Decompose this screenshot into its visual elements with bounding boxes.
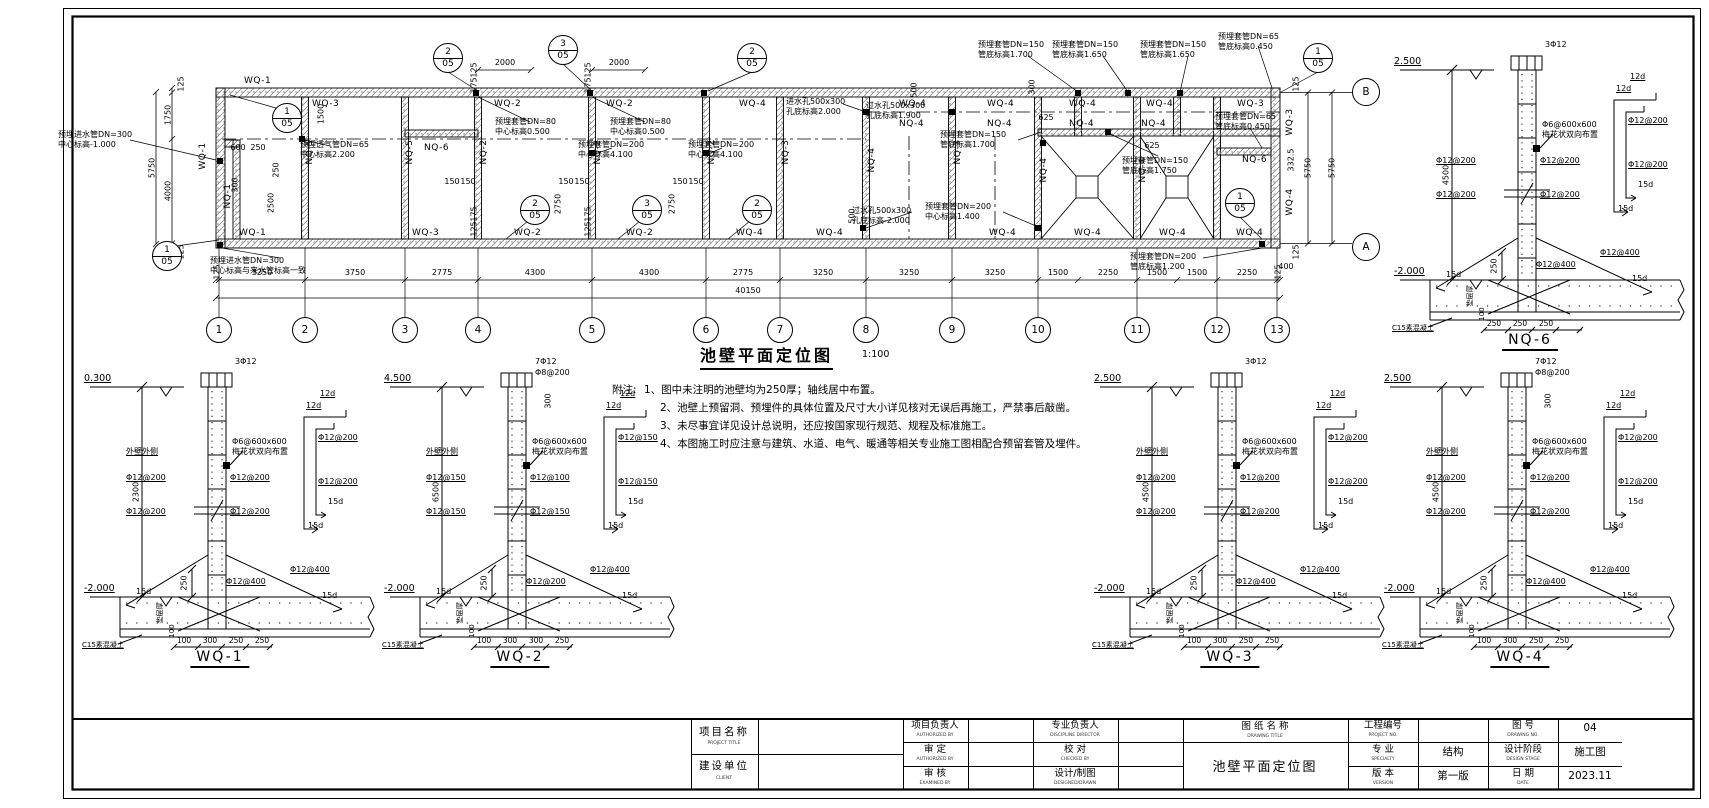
pipe-annotation: 预埋套管DN=200 中心标高4.100 [578,140,644,159]
title-block-field: 工程编号 [1364,720,1402,731]
grid-number: 1 [216,324,223,336]
detail-label: Φ12@150 [426,473,466,482]
detail-label: 15d [1638,180,1653,189]
dimension: 5750 [1328,158,1337,178]
title-block-field: AUTHORIZED BY [917,733,954,738]
detail-label: 12d [306,401,321,410]
wall-tag: NQ-5 [405,139,415,164]
detail-label: Φ12@200 [1530,507,1570,516]
axis-letter: B [1362,86,1369,98]
title-block-field: PROJECT TITLE [707,741,740,746]
detail-label: 2.500 [1384,373,1411,384]
detail-label: NQ-6 [1502,332,1558,351]
detail-label: C15素混凝土 [1382,641,1424,649]
pipe-annotation: 预埋套管DN=150 管底标高1.700 [978,40,1044,59]
detail-label: Φ12@200 [1628,116,1668,125]
wall-section-detail-wq4: 2.50045007Φ12Φ8@20030012d12d外壁外侧Φ6@600x6… [1380,345,1690,665]
detail-label: Φ12@400 [1300,565,1340,574]
title-block-field: 项目名称 [699,726,749,738]
wall-section-detail-wq3: 2.50045003Φ1212d12d外壁外侧Φ6@600x600 梅花状双向布… [1090,345,1400,665]
callout-detail-number: 2 [743,199,771,211]
detail-label: 12d [1316,401,1331,410]
dimension: 150 [460,177,475,186]
detail-label: 250 [1539,320,1553,328]
callout-detail-number: 1 [1226,192,1254,204]
detail-label: C15素混凝土 [1092,641,1134,649]
callout-detail-number: 1 [1304,47,1332,59]
detail-label: 250 [180,575,189,590]
dimension: 600 [230,143,245,152]
pipe-annotation: 进水孔500x300 孔底标高2.000 [786,97,845,116]
detail-label: 12d [1616,84,1631,93]
dimension: 2000 [495,58,515,67]
grid-bubble-6: 6 [693,317,719,343]
detail-label: 15d [308,521,323,530]
detail-label: Φ12@200 [318,433,358,442]
grid-number: 9 [949,324,956,336]
detail-label: -2.000 [84,583,115,594]
detail-callout-bubble: 105 [152,241,182,271]
detail-label: Φ12@400 [1536,260,1576,269]
detail-label: 250 [1555,637,1569,645]
pipe-annotation: 预埋透气管DN=65 中心标高2.200 [300,140,369,159]
detail-label: WQ-3 [1200,649,1259,668]
detail-label: 外壁外侧 [426,447,458,457]
drawing-sheet: WQ-1WQ-3WQ-2WQ-2WQ-4WQ-4WQ-4WQ-4WQ-4WQ-3… [0,0,1709,808]
detail-label: 15d [622,591,637,600]
dimension: 125 [470,62,479,77]
detail-label: 100 [1178,624,1186,637]
wall-tag: WQ-2 [606,99,633,109]
detail-label: 6500 [432,482,441,502]
plan-title: 池壁平面定位图 [700,342,833,370]
dimension: 150 [444,177,459,186]
detail-label: C15素混凝土 [382,641,424,649]
detail-label: Φ6@600x600 梅花状双向布置 [1532,437,1588,456]
detail-callout-bubble: 205 [742,195,772,225]
grid-number: 11 [1130,324,1143,336]
detail-label: Φ12@400 [1236,577,1276,586]
detail-label: 垫层厚 [1466,286,1474,307]
title-block-line [72,718,1694,720]
wall-tag: WQ-4 [1146,99,1173,109]
title-block-field: DESIGNED/DRAWN [1054,781,1096,786]
wall-tag: WQ-4 [1159,228,1186,238]
detail-callout-bubble: 205 [433,43,463,73]
callout-sheet-number: 05 [1304,59,1332,70]
detail-label: 垫层厚 [156,603,164,624]
title-block-field: 项目负责人 [911,720,959,731]
wall-tag: NQ-4 [987,119,1012,129]
detail-label: 外壁外侧 [1426,447,1458,457]
detail-label: 垫层厚 [1456,603,1464,624]
detail-label: Φ12@200 [1436,190,1476,199]
detail-label: 2300 [132,482,141,502]
dimension: 4000 [164,181,173,201]
grid-number: 4 [475,324,482,336]
dimension: 125 [177,76,186,91]
wall-tag: WQ-4 [816,228,843,238]
wall-section-detail-nq6: 2.50045003Φ1212d12dΦ6@600x600 梅花状双向布置Φ12… [1390,28,1700,348]
detail-label: Φ12@400 [1526,577,1566,586]
title-block-field: 审 定 [924,744,946,755]
title-block-field: 图 号 [1512,720,1534,731]
wall-section-detail-wq1: 0.30023003Φ1212d12d外壁外侧Φ6@600x600 梅花状双向布… [80,345,390,665]
dimension: 150 [574,177,589,186]
detail-label: 15d [1618,204,1633,213]
detail-label: Φ12@200 [126,473,166,482]
dimension: 300 [1028,79,1037,94]
dimension: 3250 [985,268,1005,277]
dimension: 1500 [1048,268,1068,277]
detail-label: 100 [1468,624,1476,637]
title-block-field: DRAWING NO. [1507,733,1538,738]
detail-label: 250 [1480,575,1489,590]
dimension: 125 [584,221,593,236]
grid-bubble-12: 12 [1204,317,1230,343]
dimension: 2000 [609,58,629,67]
title-block-line [1488,718,1489,790]
detail-label: 300 [529,637,543,645]
detail-label: Φ12@200 [1540,156,1580,165]
wall-tag: NQ-2 [479,139,489,164]
wall-tag: WQ-4 [739,99,766,109]
pipe-annotation: 预埋套管DN=65 管底标高0.450 [1218,32,1279,51]
grid-bubble-5: 5 [579,317,605,343]
detail-label: 15d [1608,521,1623,530]
dimension: 125 [1292,244,1301,259]
detail-label: 250 [1513,320,1527,328]
dimension: 625 [1144,141,1159,150]
title-block-field: DESIGN STAGE [1506,757,1539,762]
detail-label: 15d [436,587,451,596]
detail-label: Φ12@200 [1618,433,1658,442]
callout-sheet-number: 05 [521,211,549,222]
detail-label: 250 [1529,637,1543,645]
detail-label: Φ12@150 [618,477,658,486]
title-block-line [1348,718,1349,790]
title-block-field: CHECKED BY [1061,757,1090,762]
detail-label: Φ12@400 [1600,248,1640,257]
detail-callout-bubble: 105 [1225,188,1255,218]
title-block-field: 版 本 [1372,768,1394,779]
detail-callout-bubble: 305 [548,35,578,65]
detail-label: 300 [1544,393,1553,408]
dimension: 250 [272,162,281,177]
title-block-field: EXAMINED BY [920,781,951,786]
detail-label: 100 [168,624,176,637]
wall-tag: NQ-4 [1069,119,1094,129]
dimension: 2500 [267,193,276,213]
detail-label: Φ12@200 [230,507,270,516]
dimension: 175 [470,206,479,221]
callout-sheet-number: 05 [633,211,661,222]
axis-bubble-a: A [1352,233,1380,261]
wall-tag: WQ-1 [239,228,266,238]
detail-label: 3Φ12 [1245,357,1267,366]
dimension: 1500 [317,104,326,124]
dimension: 5750 [148,158,157,178]
title-block-field: 建设单位 [699,760,749,772]
callout-sheet-number: 05 [743,211,771,222]
section-linework [1380,345,1690,665]
callout-detail-number: 3 [633,199,661,211]
grid-bubble-10: 10 [1025,317,1051,343]
pipe-annotation: 预埋进水管DN=300 中心标高-1.000 [58,130,132,149]
detail-label: Φ12@200 [126,507,166,516]
title-block-field: 池壁平面定位图 [1212,756,1317,775]
detail-label: 300 [503,637,517,645]
detail-label: 12d [320,389,335,398]
title-block-field: DRAWING TITLE [1247,734,1282,739]
section-linework [80,345,390,665]
detail-label: 外壁外侧 [126,447,158,457]
title-block-field: DISCIPLINE DIRECTOR [1050,733,1100,738]
detail-label: 4500 [1442,165,1451,185]
dimension: 175 [584,206,593,221]
detail-label: 15d [1332,591,1347,600]
detail-label: 15d [628,497,643,506]
detail-label: Φ12@150 [618,433,658,442]
pipe-annotation: 预埋套管DN=80 中心标高0.500 [495,117,556,136]
detail-label: Φ12@200 [318,477,358,486]
dimension: 125 [584,62,593,77]
wall-tag: NQ-3 [781,139,791,164]
detail-label: 250 [1265,637,1279,645]
title-block-field: CLIENT [716,776,732,781]
detail-label: C15素混凝土 [82,641,124,649]
grid-bubble-1: 1 [206,317,232,343]
detail-label: 外壁外侧 [1136,447,1168,457]
dimension: 150 [688,177,703,186]
grid-bubble-9: 9 [939,317,965,343]
detail-label: 4500 [1432,482,1441,502]
detail-label: 15d [1338,497,1353,506]
detail-label: Φ12@200 [1628,160,1668,169]
axis-letter: A [1362,241,1369,253]
grid-number: 8 [863,324,870,336]
pipe-annotation: 预埋套管DN=200 中心标高4.100 [688,140,754,159]
detail-label: 3Φ12 [1545,40,1567,49]
pipe-annotation: 预埋套管DN=150 管底标高1.650 [1052,40,1118,59]
dimension: 332.5 [1287,149,1296,172]
dimension: 625 [1038,113,1053,122]
title-block-field: 结构 [1443,746,1464,758]
detail-label: 12d [606,401,621,410]
detail-label: 250 [1190,575,1199,590]
grid-number: 3 [402,324,409,336]
detail-callout-bubble: 305 [632,195,662,225]
detail-label: 15d [1632,274,1647,283]
detail-label: 100 [177,637,191,645]
dimension: 2775 [432,268,452,277]
detail-label: Φ12@200 [1240,473,1280,482]
title-block-line [968,718,969,790]
title-block-field: 2023.11 [1568,770,1611,782]
detail-label: 12d [620,389,635,398]
wall-tag: WQ-4 [1285,188,1295,215]
detail-label: Φ6@600x600 梅花状双向布置 [232,437,288,456]
title-block-line [1118,718,1119,790]
grid-number: 6 [703,324,710,336]
detail-label: Φ12@150 [530,507,570,516]
dimension: 3250 [813,268,833,277]
pipe-annotation: 预埋套管DN=200 管底标高1.200 [1130,252,1196,271]
detail-label: 15d [136,587,151,596]
detail-label: Φ12@200 [1328,433,1368,442]
wall-tag: NQ-6 [1242,155,1267,165]
pipe-annotation: 预埋套管DN=80 中心标高0.500 [610,117,671,136]
title-block-field: 校 对 [1064,744,1086,755]
detail-label: 7Φ12 [535,357,557,366]
detail-label: Φ12@400 [1590,565,1630,574]
title-block-field: 审 核 [924,768,946,779]
title-block-field: PROJECT NO. [1368,733,1397,738]
wall-tag: WQ-4 [1074,228,1101,238]
title-block-line [903,742,1622,743]
grid-bubble-7: 7 [767,317,793,343]
detail-callout-bubble: 105 [272,103,302,133]
pipe-annotation: 预埋进水管DN=300 中心标高与来水管标高一致 [210,256,306,275]
grid-bubble-2: 2 [292,317,318,343]
detail-label: Φ12@150 [426,507,466,516]
detail-label: 100 [1477,637,1491,645]
callout-sheet-number: 05 [434,59,462,70]
detail-label: Φ6@600x600 梅花状双向布置 [532,437,588,456]
title-block-field: 施工图 [1574,746,1606,758]
detail-label: Φ6@600x600 梅花状双向布置 [1242,437,1298,456]
detail-label: 15d [1446,270,1461,279]
callout-detail-number: 1 [273,107,301,119]
axis-bubble-b: B [1352,78,1380,106]
note-line: 2、池壁上预留洞、预埋件的具体位置及尺寸大小详见核对无误后再施工，严禁事后敲凿。 [660,402,1076,415]
detail-label: Φ12@200 [1540,190,1580,199]
detail-label: 垫层厚 [456,603,464,624]
detail-label: 垫层厚 [1166,603,1174,624]
detail-label: 250 [1487,320,1501,328]
detail-label: Φ12@200 [526,577,566,586]
grid-number: 2 [302,324,309,336]
detail-label: 15d [1436,587,1451,596]
detail-label: 12d [1606,401,1621,410]
pipe-annotation: 预埋套管DN=65 管底标高0.450 [1215,112,1276,131]
wall-tag: NQ-4 [899,119,924,129]
pipe-annotation: 预埋套管DN=150 管底标高1.650 [1140,40,1206,59]
title-block-line [903,718,904,790]
dimension: 500 [910,82,919,97]
detail-label: Φ12@200 [1618,477,1658,486]
detail-label: 15d [1622,591,1637,600]
grid-bubble-13: 13 [1264,317,1290,343]
detail-label: 250 [229,637,243,645]
dimension: 250 [250,143,265,152]
detail-label: -2.000 [384,583,415,594]
detail-label: Φ12@400 [290,565,330,574]
title-block-field: AUTHORIZED BY [917,757,954,762]
dimension: 2250 [1098,268,1118,277]
detail-label: 15d [328,497,343,506]
detail-label: 100 [1478,307,1486,320]
callout-detail-number: 2 [434,47,462,59]
detail-label: Φ12@200 [1426,473,1466,482]
wall-tag: WQ-4 [1236,228,1263,238]
grid-number: 13 [1270,324,1283,336]
title-block-field: 图 纸 名 称 [1241,721,1288,732]
detail-callout-bubble: 205 [520,195,550,225]
callout-detail-number: 2 [521,199,549,211]
dimension: 2775 [733,268,753,277]
title-block-line [1348,766,1622,767]
dimension: 2750 [668,194,677,214]
title-block-field: 第一版 [1437,770,1469,782]
dimension-total: 40150 [735,286,760,295]
detail-label: 300 [203,637,217,645]
detail-label: Φ8@200 [535,368,570,377]
grid-bubble-11: 11 [1124,317,1150,343]
dimension: 3250 [899,268,919,277]
detail-label: 15d [1146,587,1161,596]
wall-tag: WQ-3 [1237,99,1264,109]
detail-label: 15d [1628,497,1643,506]
title-block-field: 专 业 [1372,744,1394,755]
callout-sheet-number: 05 [1226,204,1254,215]
detail-label: 3Φ12 [235,357,257,366]
wall-tag: WQ-4 [736,228,763,238]
detail-label: 15d [1318,521,1333,530]
detail-label: Φ12@200 [1136,473,1176,482]
wall-tag: NQ-4 [867,147,877,172]
detail-label: Φ12@200 [1328,477,1368,486]
detail-label: 300 [1213,637,1227,645]
detail-label: Φ12@200 [1426,507,1466,516]
grid-number: 7 [777,324,784,336]
detail-label: Φ12@200 [1436,156,1476,165]
wall-tag: WQ-4 [989,228,1016,238]
detail-label: Φ6@600x600 梅花状双向布置 [1542,120,1598,139]
grid-bubble-8: 8 [853,317,879,343]
detail-label: 4.500 [384,373,411,384]
title-block-line [691,754,903,755]
detail-label: Φ12@400 [226,577,266,586]
wall-tag: NQ-6 [424,143,449,153]
title-block-field: 设计阶段 [1504,744,1542,755]
detail-label: WQ-4 [1490,649,1549,668]
detail-label: Φ12@200 [230,473,270,482]
title-block-field: 设计/制图 [1054,768,1095,779]
section-linework [1090,345,1400,665]
detail-label: 250 [255,637,269,645]
detail-label: 12d [1620,389,1635,398]
pipe-annotation: 预埋套管DN=150 管底标高1.700 [940,130,1006,149]
callout-detail-number: 3 [549,39,577,51]
detail-callout-bubble: 205 [737,43,767,73]
detail-label: C15素混凝土 [1392,324,1434,332]
detail-label: -2.000 [1094,583,1125,594]
detail-callout-bubble: 105 [1303,43,1333,73]
detail-label: 12d [1630,72,1645,81]
pipe-annotation: 过水孔500x300 孔底标高-2.000 [852,206,911,225]
note-line: 3、未尽事宜详见设计总说明，还应按国家现行规范、规程及标准施工。 [660,420,992,433]
detail-label: 4500 [1142,482,1151,502]
title-block-field: SPECIALTY [1371,757,1394,762]
dimension: 150 [672,177,687,186]
detail-label: 0.300 [84,373,111,384]
dimension: 4300 [639,268,659,277]
detail-label: 15d [322,591,337,600]
detail-label: 250 [1239,637,1253,645]
wall-tag: WQ-3 [412,228,439,238]
detail-label: 100 [468,624,476,637]
